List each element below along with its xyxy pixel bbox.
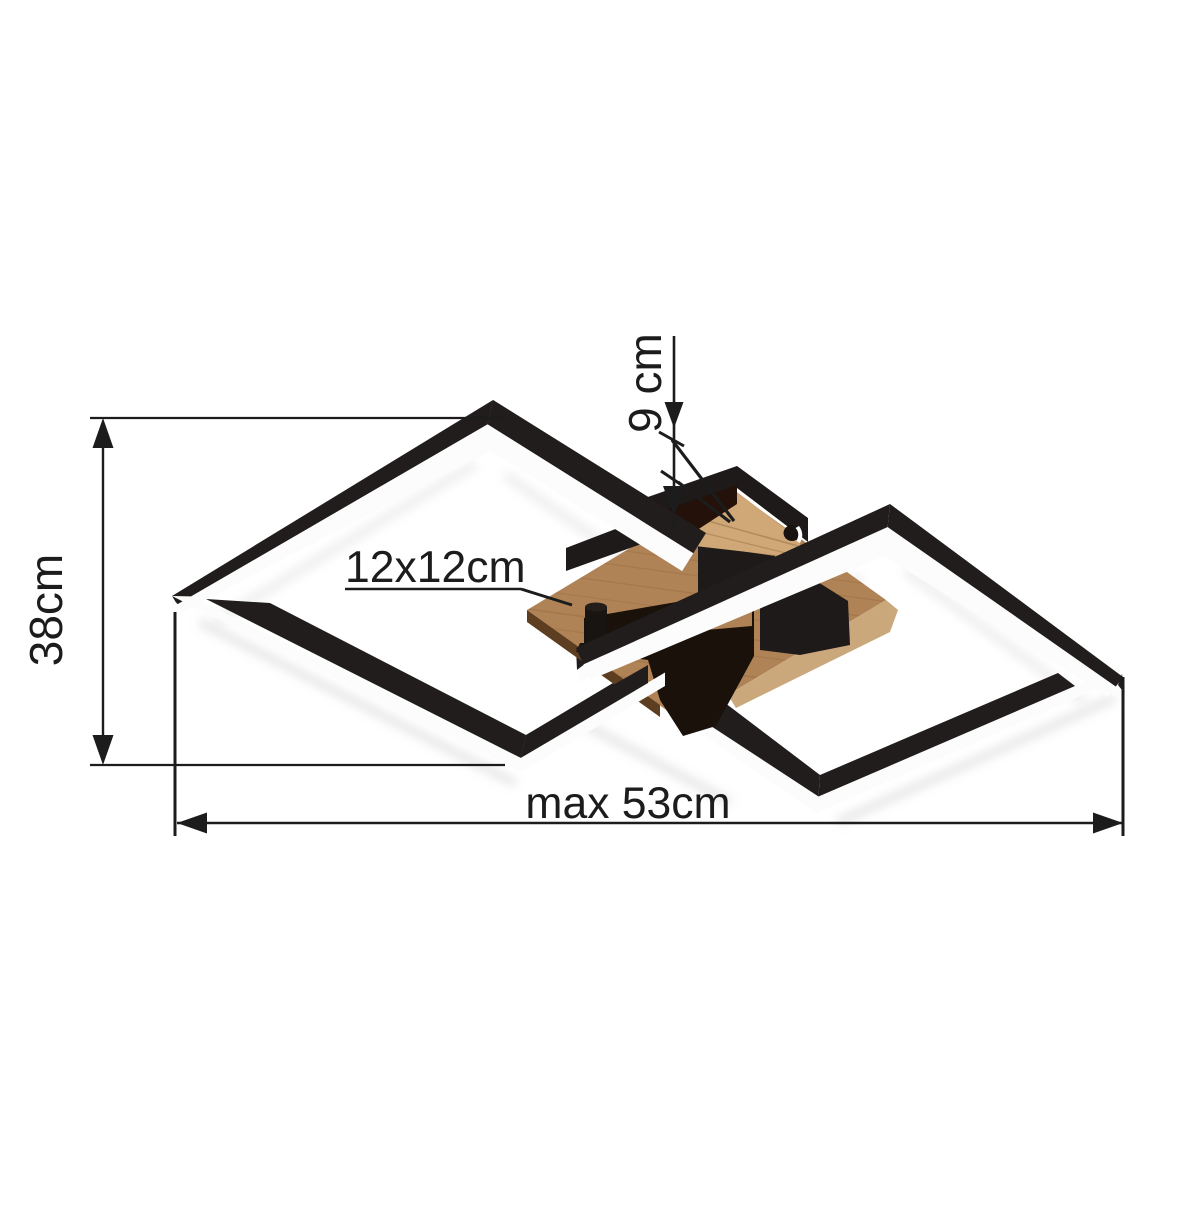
svg-text:9 cm: 9 cm <box>619 333 671 433</box>
svg-text:max 53cm: max 53cm <box>525 779 730 828</box>
svg-text:12x12cm: 12x12cm <box>345 543 526 592</box>
svg-text:38cm: 38cm <box>20 554 72 666</box>
